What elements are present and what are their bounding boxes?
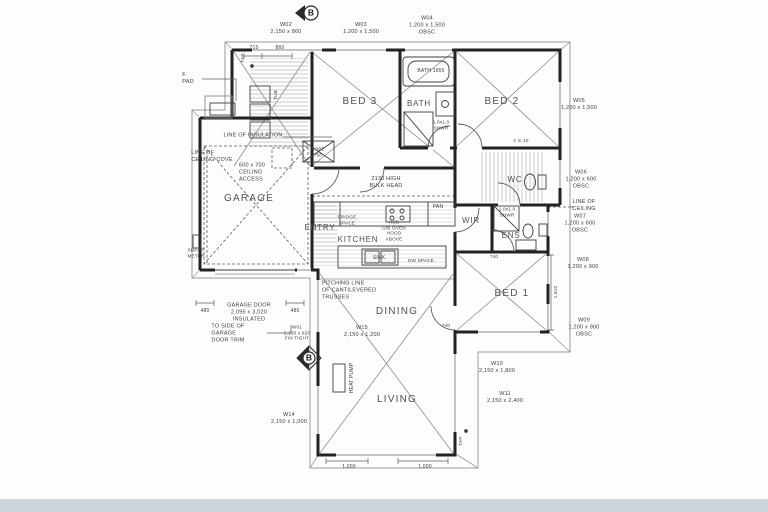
room-label-wc: WC bbox=[508, 175, 523, 185]
fridge-label: FRIDGE SPACE bbox=[338, 214, 357, 225]
dim-480-right: 480 bbox=[291, 308, 300, 314]
tap-label-top: TAP bbox=[240, 53, 246, 62]
photo-bottom-strip bbox=[0, 499, 768, 512]
dim-1000-right: 1,000 bbox=[418, 464, 432, 470]
room-label-wir: WIR bbox=[462, 216, 480, 226]
dim-1000-left: 1,000 bbox=[342, 464, 356, 470]
ens-shower-label: 1.0x1.0 SHWR bbox=[499, 206, 515, 217]
window-label-w01: W01 2,150 x 920 FIN TIGHT bbox=[284, 324, 310, 341]
floor-plan-photo: B B GARAGE BED 3 BATH BED 2 WC WIR ENS B… bbox=[0, 0, 768, 512]
note-door-trim: TO SIDE OF GARAGE DOOR TRIM bbox=[211, 324, 244, 345]
window-label-w06: W06 1,200 x 600 OBSC bbox=[566, 170, 597, 191]
note-ceiling-access: 600 x 700 CEILING ACCESS bbox=[239, 163, 265, 184]
note-pitching: PITCHING LINE OF CANTILEVERED TRUSSES bbox=[322, 281, 376, 302]
window-label-w09: W09 1,200 x 900 OBSC bbox=[569, 318, 600, 339]
room-label-bed1: BED 1 bbox=[495, 288, 530, 301]
window-label-w15: W15 2,150 x 1,200 bbox=[344, 325, 380, 339]
room-label-entry: ENTRY bbox=[305, 223, 336, 233]
window-label-w02: W02 2,150 x 860 bbox=[271, 22, 302, 36]
room-label-living: LIVING bbox=[377, 394, 417, 407]
note-insulation: LINE OF INSULATION bbox=[223, 133, 282, 140]
dim-1810: 1,810 bbox=[553, 286, 559, 299]
window-label-w14: W14 2,150 x 1,000 bbox=[271, 412, 307, 426]
heat-pump-label: HEAT PUMP bbox=[349, 363, 355, 394]
section-marker-side-label: B bbox=[306, 353, 312, 364]
fall-ratio-label: 2 in 10 bbox=[513, 138, 528, 144]
hob-oven-label: HOB U/B OVEN HOOD ABOVE bbox=[382, 220, 406, 243]
note-ceiling-cove: LINE OF CEILING COVE bbox=[191, 150, 233, 164]
room-label-kitchen: KITCHEN bbox=[338, 235, 379, 245]
window-label-w05: W05 1,200 x 1,500 bbox=[561, 98, 597, 112]
room-label-bed2: BED 2 bbox=[485, 96, 520, 109]
window-label-w07: W07 1,200 x 600 OBSC bbox=[565, 214, 596, 235]
bath-shower-label: 1.0x1.0 SHWR bbox=[433, 119, 449, 130]
window-label-w04: W04 1,200 x 1,500 OBSC bbox=[409, 16, 445, 37]
room-label-dining: DINING bbox=[376, 306, 418, 319]
bath-tub-label: BATH 1655 bbox=[417, 68, 444, 74]
robe-label: ROBE 750 bbox=[311, 146, 325, 157]
room-label-garage: GARAGE bbox=[224, 193, 274, 206]
dim-740-a: 740 bbox=[442, 323, 450, 329]
dim-860: 860 bbox=[276, 45, 285, 51]
note-bulkhead: 2130 HIGH BULK HEAD bbox=[370, 176, 403, 190]
dim-715: 715 bbox=[250, 45, 259, 51]
tap-label-bottom: TAP bbox=[458, 436, 464, 445]
laundry-tub-label: TUB bbox=[273, 90, 279, 100]
window-label-w11: W11 2,150 x 2,400 bbox=[487, 391, 523, 405]
window-label-w03: W03 1,200 x 1,500 bbox=[343, 22, 379, 36]
smart-meter-label: SMART METER bbox=[187, 247, 204, 258]
dim-480-left: 480 bbox=[201, 308, 210, 314]
room-label-ens: ENS bbox=[502, 231, 521, 241]
note-garage-door: GARAGE DOOR 2,095 x 3,020 INSULATED bbox=[227, 303, 271, 324]
sink-label: SINK bbox=[373, 255, 385, 261]
pantry-label: PAN bbox=[433, 204, 444, 210]
section-marker-top-label: B bbox=[308, 8, 314, 19]
foundation-pad-label: F PAD bbox=[182, 72, 194, 86]
room-label-bed3: BED 3 bbox=[343, 96, 378, 109]
note-line-of-ceiling: LINE OF CEILING bbox=[572, 199, 595, 213]
window-label-w08: W08 1,200 x 900 bbox=[568, 257, 599, 271]
dishwasher-label: DW SPACE bbox=[408, 258, 434, 264]
window-label-w10: W10 2,150 x 1,800 bbox=[479, 361, 515, 375]
dim-740-b: 740 bbox=[490, 254, 498, 260]
room-label-bath: BATH bbox=[407, 99, 431, 109]
